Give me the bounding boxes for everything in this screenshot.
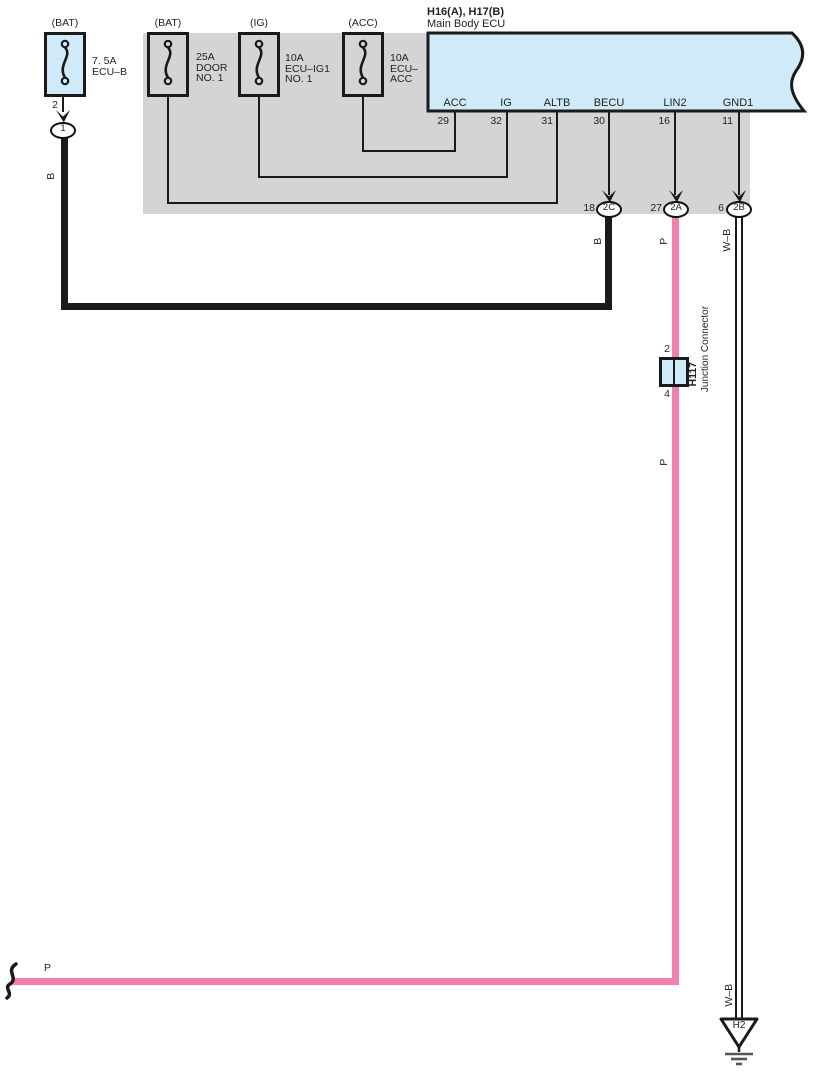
junction-connector-h117 (659, 357, 689, 387)
ground-label: H2 (728, 1021, 750, 1032)
ecu-pin-label-acc: ACC (433, 98, 477, 109)
ecu-pin-number-30: 30 (569, 116, 605, 127)
wire-ig-fuse-horizontal (258, 176, 508, 178)
ecu-pin-number-31: 31 (517, 116, 553, 127)
wire-pin11-stub (738, 112, 740, 195)
fuse-symbol-icon (345, 35, 381, 94)
junction-cell-right (675, 360, 686, 384)
ecu-pin-number-11: 11 (697, 116, 733, 127)
ecu-pin-label-ig: IG (484, 98, 528, 109)
wire-pin32-stub (506, 112, 508, 178)
wire-label-wb-bottom: W–B (724, 978, 735, 1012)
wire-black-b-horizontal (61, 303, 612, 310)
wire-white-black-vertical (735, 215, 743, 1019)
becu-pin-number: 18 (575, 203, 595, 214)
wire-label-wb-top: W–B (722, 223, 733, 257)
fuse-ig1-source-label: (IG) (229, 18, 289, 29)
fuse-symbol-icon (150, 35, 186, 94)
wire-ig-fuse-vertical (258, 97, 260, 178)
fuse-symbol-icon (47, 35, 83, 94)
ecu-pin-number-16: 16 (634, 116, 670, 127)
fuse-symbol-icon (241, 35, 277, 94)
arrow-down-icon (55, 109, 71, 123)
junction-name: H117 (688, 356, 699, 392)
junction-type: Junction Connector (701, 303, 711, 395)
wiring-diagram: H16(A), H17(B) Main Body ECU ACC IG ALTB… (0, 0, 815, 1074)
fuse-ecu-ig1 (238, 32, 280, 97)
junction-pin-top: 2 (652, 344, 670, 355)
fuse-door-source-label: (BAT) (138, 18, 198, 29)
terminal-oval-2b: 2B (726, 201, 752, 218)
fuse1-pin-number: 2 (40, 100, 58, 111)
wire-label-p-bottom: P (44, 963, 51, 974)
wire-black-b-vertical-left (61, 137, 68, 310)
ecu-subtitle: Main Body ECU (427, 19, 505, 30)
wire-label-p-top: P (659, 233, 670, 249)
ecu-pin-number-29: 29 (413, 116, 449, 127)
wire-door-fuse-vertical (167, 97, 169, 204)
wire-pink-p-horizontal (12, 978, 679, 985)
fuse-ig1-rating-label: 10A ECU–IG1 NO. 1 (285, 53, 330, 85)
wire-pin30-stub (608, 112, 610, 195)
fuse-ecu-acc (342, 32, 384, 97)
wire-pin16-stub (674, 112, 676, 195)
fuse-ecu-b (44, 32, 86, 97)
wire-acc-fuse-vertical (362, 97, 364, 152)
wire-pink-p-vertical (672, 215, 679, 985)
ecu-pin-label-gnd1: GND1 (716, 98, 760, 109)
fuse-ecub-rating-label: 7. 5A ECU–B (92, 56, 127, 77)
lin2-pin-number: 27 (642, 203, 662, 214)
junction-cell-left (662, 360, 673, 384)
fuse-acc-source-label: (ACC) (333, 18, 393, 29)
ecu-pin-label-altb: ALTB (535, 98, 579, 109)
terminal-oval-1: 1 (50, 122, 76, 139)
wire-label-p-middle: P (659, 454, 670, 470)
terminal-oval-2a: 2A (663, 201, 689, 218)
wire-label-b-right: B (593, 233, 604, 249)
ecu-pin-label-lin2: LIN2 (653, 98, 697, 109)
fuse-acc-rating-label: 10A ECU– ACC (390, 53, 418, 85)
fuse-door-rating-label: 25A DOOR NO. 1 (196, 52, 228, 84)
fuse-door-no1 (147, 32, 189, 97)
ecu-pin-label-becu: BECU (587, 98, 631, 109)
junction-pin-bottom: 4 (652, 389, 670, 400)
ecu-title: H16(A), H17(B) (427, 7, 504, 18)
wire-door-fuse-horizontal (167, 202, 558, 204)
terminal-oval-2c: 2C (596, 201, 622, 218)
continuation-squiggle-icon (1, 961, 23, 1001)
wire-label-b-left: B (46, 168, 57, 184)
wire-pin31-stub (556, 112, 558, 204)
wire-acc-fuse-horizontal (362, 150, 456, 152)
gnd1-pin-number: 6 (704, 203, 724, 214)
wire-pin29-stub (454, 112, 456, 152)
fuse-ecub-source-label: (BAT) (35, 18, 95, 29)
ecu-pin-number-32: 32 (466, 116, 502, 127)
wire-black-b-vertical-right (605, 215, 612, 310)
